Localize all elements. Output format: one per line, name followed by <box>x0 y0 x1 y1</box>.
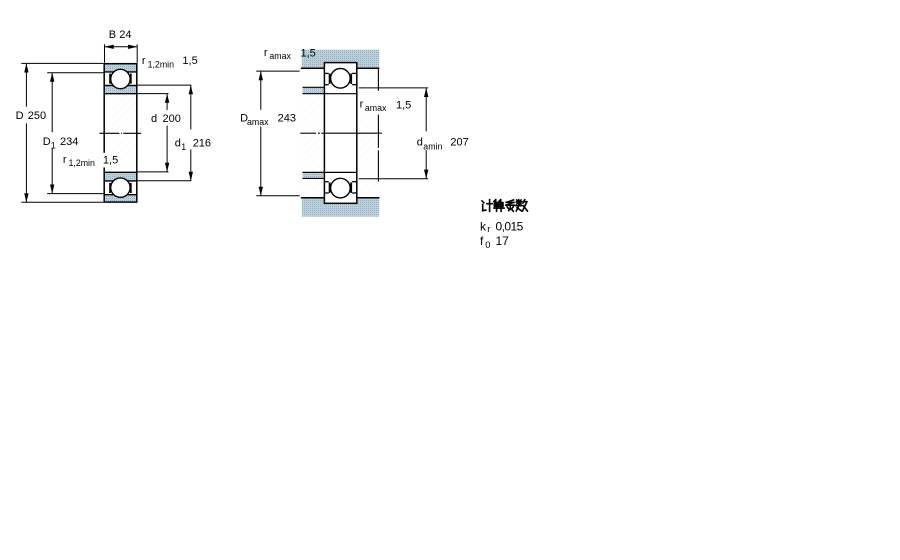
svg-text:r: r <box>142 55 146 67</box>
svg-text:r: r <box>63 154 67 166</box>
svg-text:amax: amax <box>247 117 269 127</box>
svg-text:1: 1 <box>181 142 186 152</box>
svg-text:234: 234 <box>60 136 78 148</box>
svg-text:amax: amax <box>269 51 291 61</box>
svg-text:1: 1 <box>51 140 56 150</box>
svg-text:B: B <box>109 29 116 41</box>
svg-text:1,5: 1,5 <box>396 99 411 111</box>
svg-text:1,5: 1,5 <box>103 155 118 167</box>
svg-text:amin: amin <box>423 141 442 151</box>
svg-text:r: r <box>360 99 364 111</box>
svg-text:207: 207 <box>450 137 468 149</box>
svg-text:1,2min: 1,2min <box>148 59 175 69</box>
svg-text:d: d <box>151 113 157 125</box>
svg-text:17: 17 <box>496 234 510 248</box>
svg-text:243: 243 <box>278 113 296 125</box>
svg-text:216: 216 <box>193 137 211 149</box>
svg-text:D: D <box>16 110 24 122</box>
svg-text:250: 250 <box>28 110 46 122</box>
svg-text:1,2min: 1,2min <box>69 158 96 168</box>
svg-text:24: 24 <box>119 29 131 41</box>
svg-text:r: r <box>264 47 268 59</box>
svg-text:k: k <box>480 220 487 234</box>
svg-text:200: 200 <box>163 113 181 125</box>
svg-text:1,5: 1,5 <box>182 55 197 67</box>
svg-text:r: r <box>487 223 490 234</box>
svg-text:d: d <box>175 137 181 149</box>
svg-text:0,015: 0,015 <box>496 220 524 234</box>
svg-text:amax: amax <box>365 103 387 113</box>
svg-text:d: d <box>417 137 423 149</box>
svg-text:D: D <box>43 136 51 148</box>
svg-text:1,5: 1,5 <box>301 47 316 59</box>
svg-text:0: 0 <box>485 239 490 250</box>
